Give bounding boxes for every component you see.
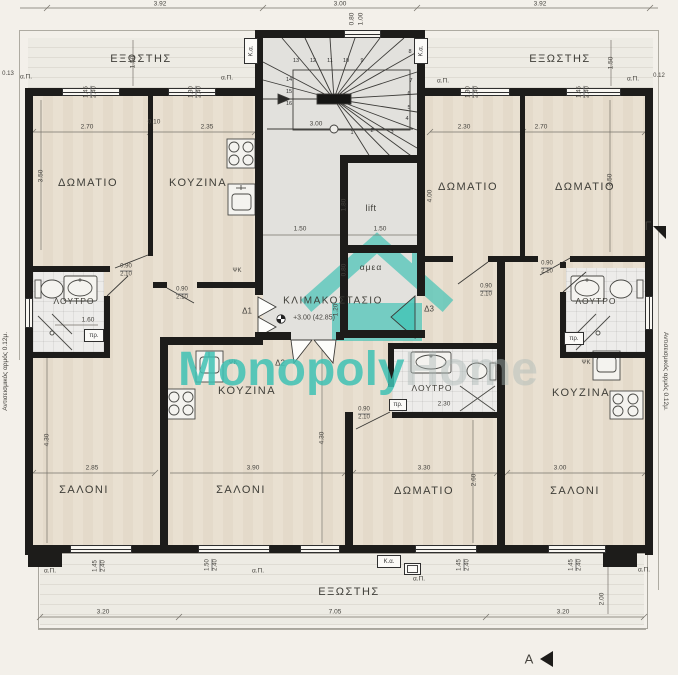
door-dim-height: 2.10 [541,268,553,276]
dim-label: 3.90 [247,465,260,472]
section-marker-a-arrow-icon [540,651,553,667]
door-dim: 0.90 2.10 [541,261,553,276]
wall [104,266,110,272]
ap-tag: α.Π. [252,568,264,575]
dim-label: 0.10 [148,119,161,126]
ap-tag: α.Π. [437,78,449,85]
wall [603,545,637,567]
seismic-joint-note-right: Αντισεισμικός αρμός 0.12μ. [662,332,669,411]
window-dim-width: 1.45 [577,86,584,98]
wall [28,545,62,567]
dim-label: 2.30 [438,401,451,408]
dim-label: 3.20 [557,609,570,616]
wall [520,96,525,262]
step-number: 12 [310,58,316,64]
floor-plan: ΕΞΩΣΤΗΣ ΕΞΩΣΤΗΣ ΕΞΩΣΤΗΣ ΔΩΜΑΤΙΟ ΔΩΜΑΤΙΟ … [0,0,678,675]
step-number: 3 [390,129,393,135]
ap-tag: α.Π. [638,567,650,574]
room-label-accessible: αμεα [360,262,383,272]
step-number: 9 [360,58,363,64]
dim-label: 7.05 [329,609,342,616]
level-annotation: +3.00 (42.85) [293,315,335,322]
section-marker-a-label: Α [525,652,534,667]
level-marker-icon [277,315,285,323]
dim-label: 3.00 [554,465,567,472]
psk-tag: ΨΚ [581,360,590,366]
wall [255,30,263,295]
dim-label: 2.00 [599,593,606,606]
door-dim-height: 2.10 [358,414,370,422]
door-dim-width: 0.90 [120,264,132,271]
wall [497,262,505,545]
wall [33,352,110,358]
step-number: 10 [343,58,349,64]
wall [417,30,425,296]
window-dim: 1.30 2.40 [189,86,204,98]
section-marker-g-arrow-icon [653,226,666,239]
window-dim: 1.45 2.40 [569,559,584,571]
dim-label: 4.00 [427,190,434,203]
pr-box: πρ. [389,399,407,411]
door-dim: 0.90 2.10 [120,264,132,279]
step-number: 14 [286,77,292,83]
window [344,30,381,38]
window-dim-height: 2.40 [100,560,108,572]
wall [33,266,110,272]
pr-box: πρ. [84,329,104,342]
window-dim-width: 1.45 [569,559,576,571]
wall [255,30,425,38]
ap-tag: α.Π. [413,576,425,583]
watermark-secondary: Home [405,343,538,396]
wall [570,256,648,262]
dim-label: 0.80 [341,264,348,277]
step-number: 7 [409,78,412,84]
pr-label: πρ. [393,402,402,408]
door-dim-width: 0.90 [541,261,553,268]
ka-box: Κ.α. [377,555,401,568]
door-dim-height: 2.10 [120,271,132,279]
window [548,545,606,553]
door-tag-d3: Δ3 [424,305,434,314]
door-dim-width: 0.90 [176,287,188,294]
offset-label: 0.12 [653,73,665,79]
step-number: 1 [350,130,353,136]
room-label-lift: lift [366,203,377,213]
dim-label: 4.30 [319,432,326,445]
dim-label: 2.85 [86,465,99,472]
window-dim: 1.45 2.40 [457,559,472,571]
door-dim: 0.90 2.10 [176,287,188,302]
ka-label: Κ.α. [418,46,424,57]
wall [336,332,344,340]
dim-label: 1.00 [358,13,365,26]
door-dim: 0.90 2.10 [480,284,492,299]
window [25,298,33,328]
pr-label: πρ. [569,336,578,342]
dim-label: 3.92 [154,1,167,8]
pr-box: πρ. [564,332,584,345]
window [70,545,132,553]
ap-tag: α.Π. [44,568,56,575]
window-dim: 1.45 2.40 [84,86,99,98]
dim-label: 2.70 [81,124,94,131]
step-number: 4 [405,116,408,122]
window-dim-width: 1.30 [189,86,196,98]
room-label-balcony: ΕΞΩΣΤΗΣ [110,53,171,65]
pr-label: πρ. [89,333,98,339]
window-dim-width: 1.45 [457,559,464,571]
window [415,545,477,553]
watermark-primary: Monopoly [178,343,405,396]
room-label-bedroom: ΔΩΜΑΤΙΟ [394,485,454,497]
door-dim-width: 0.90 [358,407,370,414]
ka-label: Κ.α. [384,559,395,565]
offset-label: 0.13 [2,71,14,77]
dim-label: 3.30 [418,465,431,472]
dim-label: 2.70 [535,124,548,131]
wall [340,155,425,163]
room-label-bedroom: ΔΩΜΑΤΙΟ [58,177,118,189]
step-number: 13 [293,58,299,64]
step-number: 2 [370,128,373,134]
step-number: 5 [407,105,410,111]
door-tag-d1: Δ1 [242,307,252,316]
room-label-bathroom: ΛΟΥΤΡΟ [54,296,95,306]
room-label-living: ΣΑΛΟΝΙ [59,484,109,496]
wall [25,88,263,96]
wall [340,245,417,253]
seismic-joint-note-left: Αντισεισμικός αρμός 0.12μ. [2,332,9,411]
window [300,545,340,553]
dim-label: 2.30 [458,124,471,131]
dim-label: 1.20 [333,304,340,317]
window [566,88,621,96]
room-label-bedroom: ΔΩΜΑΤΙΟ [438,181,498,193]
door-dim-width: 0.90 [480,284,492,291]
ap-tag: α.Π. [20,74,32,81]
room-label-balcony: ΕΞΩΣΤΗΣ [318,586,379,598]
legend-icon-box [404,563,421,575]
window-dim-width: 1.45 [93,560,100,572]
dim-label: 1.50 [130,56,137,69]
door-dim-height: 2.10 [176,294,188,302]
window-dim: 1.45 2.40 [577,86,592,98]
step-number: 16 [286,101,292,107]
wall [104,296,110,352]
ap-tag: α.Π. [221,75,233,82]
dim-label: 0.80 [349,13,356,26]
room-label-bathroom: ΛΟΥΤΡΟ [576,296,617,306]
dim-label: 1.50 [374,226,387,233]
window-dim-height: 2.40 [464,559,472,571]
window-dim-width: 1.50 [205,559,212,571]
wall [560,292,566,358]
wall [392,412,497,418]
window-dim: 1.45 2.40 [93,560,108,572]
ka-box: Κ.α. [414,38,428,64]
wall [560,352,648,358]
dim-label: 1.80 [341,199,348,212]
window-dim-height: 2.40 [196,86,204,98]
door-dim-height: 2.10 [480,291,492,299]
dim-label: 3.00 [310,121,323,128]
door-dim: 0.90 2.10 [358,407,370,422]
dim-label: 1.50 [608,57,615,70]
wall [153,282,167,288]
window-dim-height: 2.40 [91,86,99,98]
window-dim-height: 2.40 [576,559,584,571]
window-dim-height: 2.40 [212,559,220,571]
window-dim-width: 1.45 [84,86,91,98]
ap-tag: α.Π. [627,76,639,83]
window [198,545,270,553]
dim-label: 2.35 [201,124,214,131]
dim-label: 3.20 [97,609,110,616]
step-number: 6 [407,91,410,97]
ka-label: Κ.α. [248,46,254,57]
room-label-kitchen: ΚΟΥΖΙΝΑ [552,387,610,399]
window-dim: 1.50 2.40 [205,559,220,571]
room-label-kitchen: ΚΟΥΖΙΝΑ [169,177,227,189]
dim-label: 3.00 [334,1,347,8]
room-label-living: ΣΑΛΟΝΙ [216,484,266,496]
window-dim-height: 2.40 [584,86,592,98]
dim-label: 4.30 [44,434,51,447]
dim-label: 3.50 [38,170,45,183]
ka-box: Κ.α. [244,38,258,64]
window-dim-height: 2.40 [473,86,481,98]
step-number: 8 [408,49,411,55]
psk-tag: ΨΚ [232,268,241,274]
wall [488,256,538,262]
dim-label: 1.50 [294,226,307,233]
room-label-living: ΣΑΛΟΝΙ [550,485,600,497]
wall [345,412,353,545]
dim-label: 2.60 [471,474,478,487]
window [645,296,653,330]
wall [560,262,566,268]
wall [340,330,425,338]
window-dim-width: 1.30 [466,86,473,98]
room-label-balcony: ΕΞΩΣΤΗΣ [529,53,590,65]
section-marker-g-label: Γ [645,219,652,233]
window-dim: 1.30 2.40 [466,86,481,98]
wall [425,256,453,262]
dim-label: 3.92 [534,1,547,8]
dim-label: 3.50 [607,174,614,187]
wall [197,282,255,288]
watermark-text: MonopolyHome [178,342,538,397]
step-number: 15 [286,89,292,95]
wall [160,337,168,545]
staircase-steps [263,38,417,160]
step-number: 11 [327,58,333,64]
picture-icon [407,565,418,573]
dim-label: 1.60 [82,317,95,324]
